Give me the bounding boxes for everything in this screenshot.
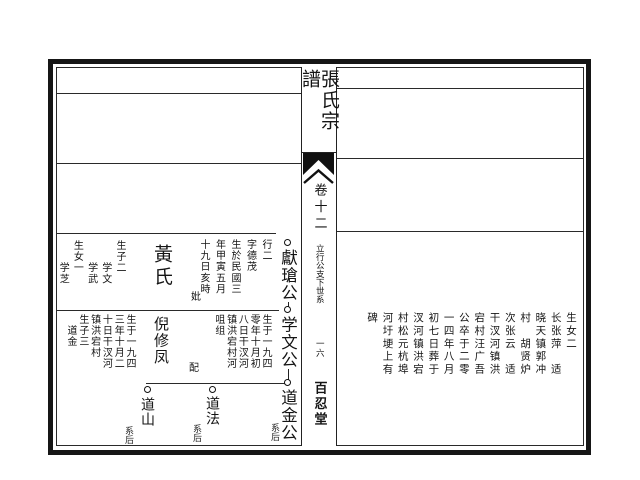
page-number: 一六 [315,339,324,358]
gen3-son1-name: 道金公 [279,389,296,442]
node-circle-icon [284,306,291,313]
gen2-notes: 生于一九四 零年十月初 八日干汊河 镇洪宕村河 咀组 [212,314,271,374]
gen1-spouse-name: 黃氏 [152,244,171,289]
gen3-son3-tag: 系后 [123,426,132,444]
right-row-divider-3 [337,231,583,232]
gen3-son1-tag: 系后 [269,423,278,441]
node-circle-icon [284,239,291,246]
fishtail-mark-icon [303,153,334,185]
genealogy-page: 張氏宗譜 卷十二 立行公支下世系 一六 百忍堂 獻瑲公 行二 字德茂 生於民國三… [0,0,640,480]
gen3-son2-name: 道法 [205,396,219,426]
section-label: 立行公支下世系 [315,244,324,304]
gen3-son2-tag: 系后 [191,424,200,442]
left-row-divider-3 [57,233,276,234]
right-row-divider-1 [337,88,583,89]
node-circle-icon [284,379,291,386]
spine-title-box: 張氏宗譜 [302,67,336,153]
gen3-son3-name: 道山 [140,397,154,427]
sibling-branch-line [146,383,288,384]
gen1-children-list: 生子二 学文 学武 生女一 学芝 [55,240,126,290]
spine-section-box: 立行公支下世系 [302,244,336,304]
volume-label: 卷十二 [313,183,326,233]
gen2-spouse-notes: 生于一九四 三年十月二 十日干汊河 镇洪宕村 生子三 道金 [64,314,135,374]
gen2-spouse-prefix: 配 [189,359,199,374]
node-circle-icon [144,386,151,393]
spine-volume-box: 卷十二 [302,183,336,233]
spine-column: 張氏宗譜 卷十二 立行公支下世系 一六 百忍堂 [301,67,337,446]
hall-name: 百忍堂 [313,381,326,428]
book-title: 張氏宗譜 [300,69,338,152]
spine-hall-box: 百忍堂 [302,381,336,428]
left-row-divider-1 [57,93,301,94]
gen1-notes: 行二 字德茂 生於民國三 年甲寅五月 十九日亥時 [196,239,274,301]
gen2-spouse-name: 倪修凤 [153,316,168,366]
left-row-divider-4 [57,310,279,311]
gen1-spouse-prefix: 妣 [191,288,201,303]
node-circle-icon [209,386,216,393]
spine-page-number-box: 一六 [302,339,336,358]
right-row-divider-2 [337,158,583,159]
gen1-node-name: 獻瑲公 [279,249,296,302]
gen2-node-name: 学文公 [279,316,296,369]
left-row-divider-2 [57,163,301,164]
right-page-note: 生女二 长张萍 适 晓天镇郭冲 村 胡贤炉 次张云 适 干汊河镇洪 宕村汪广吾 … [364,312,578,380]
